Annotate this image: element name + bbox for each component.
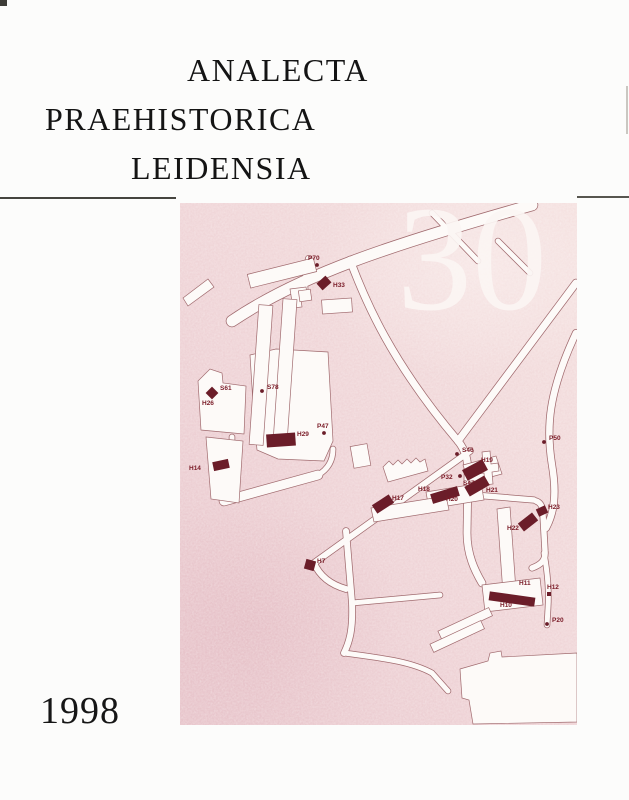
book-cover: ANALECTA PRAEHISTORICA LEIDENSIA (0, 0, 629, 800)
site-label-h23: H23 (548, 504, 560, 511)
site-h26: H26 (202, 400, 214, 407)
site-marker-dot (542, 440, 546, 444)
site-h20: H20 (446, 496, 458, 503)
title-line-leidensia: LEIDENSIA (131, 150, 312, 187)
scan-corner-mark (0, 0, 7, 6)
site-label-h19: H19 (481, 457, 493, 464)
horizontal-rule-left (0, 197, 176, 199)
site-label-p20: P20 (552, 617, 564, 624)
site-label-s46: S46 (462, 447, 474, 454)
title-line-analecta: ANALECTA (187, 52, 369, 89)
site-label-s78: S78 (267, 384, 279, 391)
site-marker-dot (455, 452, 459, 456)
site-marker-dot (315, 263, 319, 267)
site-label-h17: H17 (392, 495, 404, 502)
site-label-h26: H26 (202, 400, 214, 407)
site-marker-square (547, 592, 551, 596)
site-label-h11: H11 (519, 580, 531, 587)
site-marker-dot (322, 431, 326, 435)
site-label-h12: H12 (547, 584, 559, 591)
site-label-h14: H14 (189, 465, 201, 472)
site-label-p70: P70 (308, 255, 320, 262)
site-h11: H11 (519, 580, 531, 587)
site-label-h20: H20 (446, 496, 458, 503)
cover-map-illustration: 30 P70H33S61H26S78H29P47H14S46P50H19P32S… (180, 203, 577, 725)
site-marker-bar (266, 433, 296, 448)
scan-edge-smudge (626, 86, 628, 134)
site-label-p47: P47 (317, 423, 329, 430)
title-line-praehistorica: PRAEHISTORICA (45, 101, 316, 138)
site-label-h7: H7 (317, 558, 326, 565)
site-label-h21: H21 (486, 487, 498, 494)
site-label-h22: H22 (507, 525, 519, 532)
horizontal-rule-right (577, 196, 629, 198)
site-map: 30 P70H33S61H26S78H29P47H14S46P50H19P32S… (180, 203, 577, 725)
site-label-h18: H18 (418, 486, 430, 493)
site-label-h10: H10 (500, 602, 512, 609)
site-label-p50: P50 (549, 435, 561, 442)
site-marker-dot (260, 389, 264, 393)
year-label: 1998 (40, 689, 120, 733)
volume-number: 30 (397, 203, 547, 342)
site-label-h33: H33 (333, 282, 345, 289)
site-label-p32: P32 (441, 474, 453, 481)
site-marker-dot (545, 622, 549, 626)
site-marker-dot (458, 474, 462, 478)
site-label-s61: S61 (220, 385, 232, 392)
site-label-h29: H29 (297, 431, 309, 438)
